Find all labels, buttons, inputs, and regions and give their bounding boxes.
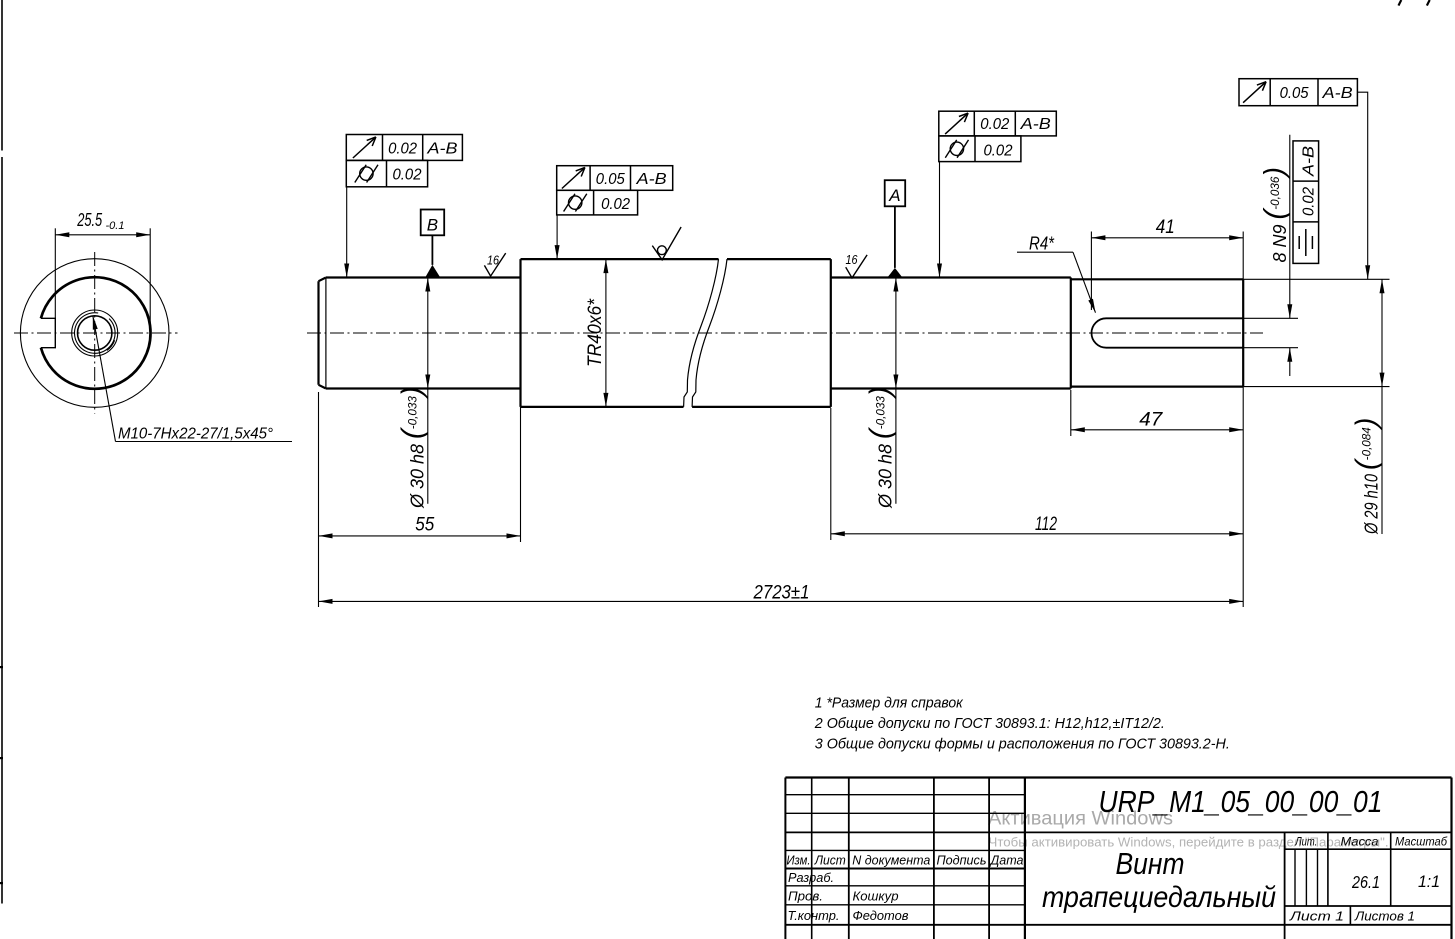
svg-text:0.02: 0.02 <box>1300 187 1317 216</box>
svg-text:Т.контр.: Т.контр. <box>788 908 840 923</box>
svg-text:0.02: 0.02 <box>388 140 417 157</box>
svg-text:Изм.: Изм. <box>787 853 811 868</box>
svg-text:Федотов: Федотов <box>853 908 909 923</box>
svg-text:трапециедальный: трапециедальный <box>1042 881 1276 914</box>
svg-text:TR40x6*: TR40x6* <box>585 298 606 367</box>
svg-text:Разраб.: Разраб. <box>788 870 834 885</box>
svg-text:Лит.: Лит. <box>1294 834 1317 848</box>
svg-text:A-B: A-B <box>1020 116 1051 133</box>
svg-text:-0.1: -0.1 <box>106 220 125 232</box>
svg-text:2723±1: 2723±1 <box>753 583 810 604</box>
svg-text:A-B: A-B <box>426 140 457 157</box>
svg-text:Пров.: Пров. <box>788 888 823 903</box>
svg-text:Дата: Дата <box>989 853 1024 868</box>
svg-text:Кошкур: Кошкур <box>853 888 899 903</box>
svg-text:41: 41 <box>1156 217 1175 238</box>
svg-text:R4*: R4* <box>1029 233 1055 253</box>
svg-text:Листов 1: Листов 1 <box>1354 909 1415 924</box>
svg-text:0.02: 0.02 <box>601 196 630 213</box>
svg-text:26.1: 26.1 <box>1351 872 1380 892</box>
svg-text:25.5: 25.5 <box>77 209 103 230</box>
svg-text:Подпись: Подпись <box>937 853 987 868</box>
svg-text:B: B <box>427 215 438 234</box>
svg-text:A: A <box>888 186 900 205</box>
svg-text:URP_M1_05_00_00_01: URP_M1_05_00_00_01 <box>1099 784 1383 819</box>
svg-text:Лист: Лист <box>814 853 846 868</box>
svg-text:Лист 1: Лист 1 <box>1289 909 1344 924</box>
svg-text:М10-7Нх22-27/1,5х45°: М10-7Нх22-27/1,5х45° <box>118 426 273 443</box>
svg-text:Масса: Масса <box>1341 834 1379 848</box>
svg-text:0.05: 0.05 <box>596 171 625 188</box>
svg-text:2 Общие допуски по ГОСТ 30893.: 2 Общие допуски по ГОСТ 30893.1: Н12,h12… <box>814 715 1165 732</box>
svg-text:A-B: A-B <box>1322 85 1353 102</box>
svg-text:16: 16 <box>846 253 858 267</box>
svg-text:1 *Размер для справок: 1 *Размер для справок <box>815 695 964 712</box>
svg-text:A-B: A-B <box>1300 146 1317 177</box>
svg-text:Винт: Винт <box>1116 846 1185 881</box>
svg-text:3 Общие допуски формы и распол: 3 Общие допуски формы и расположения по … <box>815 736 1230 753</box>
svg-text:47: 47 <box>1139 410 1164 431</box>
svg-text:N документа: N документа <box>852 853 930 868</box>
svg-text:0.05: 0.05 <box>1280 85 1309 102</box>
svg-text:0.02: 0.02 <box>980 116 1009 133</box>
svg-text:55: 55 <box>415 514 434 535</box>
svg-text:16: 16 <box>487 253 499 267</box>
svg-text:0.02: 0.02 <box>393 167 422 184</box>
svg-text:112: 112 <box>1035 514 1057 535</box>
svg-text:A-B: A-B <box>635 171 666 188</box>
svg-text:1:1: 1:1 <box>1418 872 1440 891</box>
svg-text:Масштаб: Масштаб <box>1395 834 1448 848</box>
svg-text:0.02: 0.02 <box>984 142 1013 159</box>
